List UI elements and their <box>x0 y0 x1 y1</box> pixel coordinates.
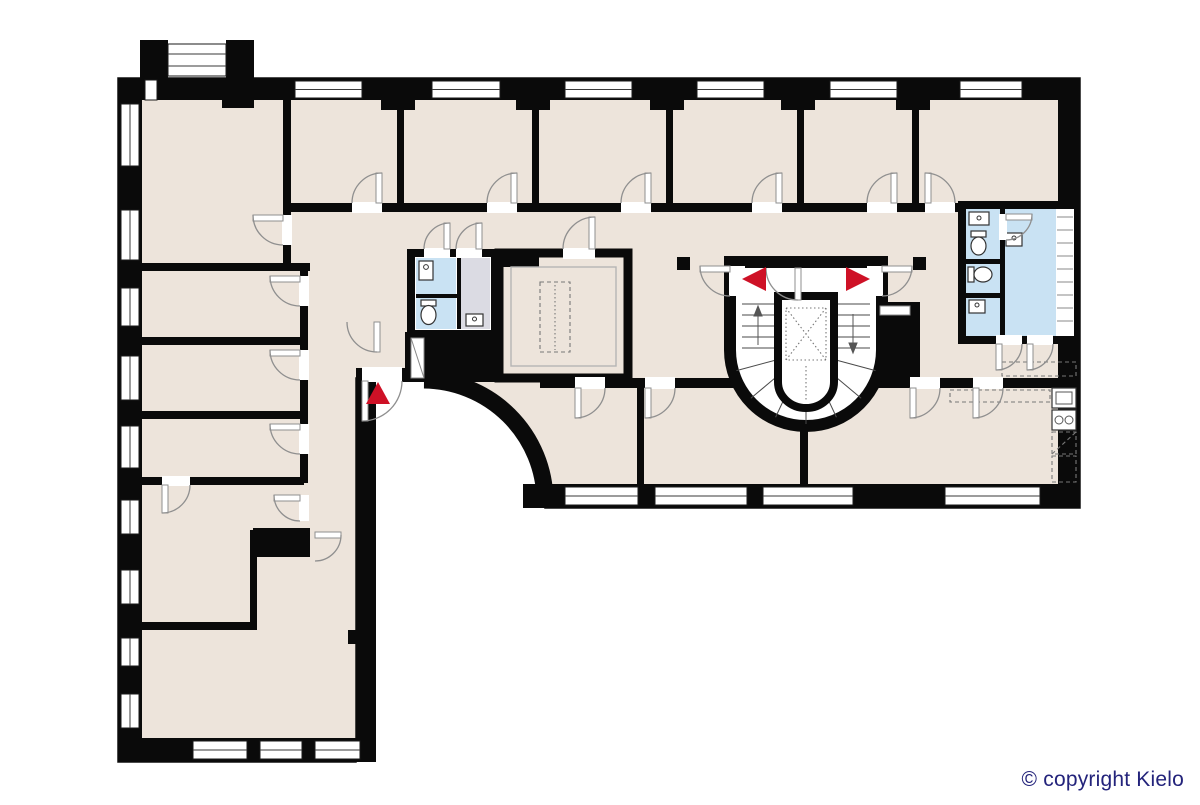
sink-icon <box>466 314 483 326</box>
floor-plan-canvas <box>0 0 1200 800</box>
wc-cluster-right <box>962 205 1076 340</box>
elevator-room <box>499 251 628 378</box>
toilet-icon <box>421 300 436 325</box>
sink-icon <box>969 212 989 225</box>
copyright-text: © copyright Kielo <box>1022 768 1184 792</box>
floor-plan-drawing <box>0 0 1200 800</box>
column-icon <box>913 257 926 270</box>
column-icon <box>677 257 690 270</box>
stairwell <box>730 262 882 426</box>
service-shaft <box>878 302 920 380</box>
shelf-stripes-icon <box>1056 209 1074 336</box>
sink-icon <box>969 300 985 313</box>
building-footprint <box>118 78 1080 762</box>
toilet-icon <box>968 267 992 282</box>
sink-icon <box>419 261 433 280</box>
column-icon <box>348 630 362 644</box>
stove-icon <box>1052 410 1076 430</box>
toilet-icon <box>971 231 986 255</box>
